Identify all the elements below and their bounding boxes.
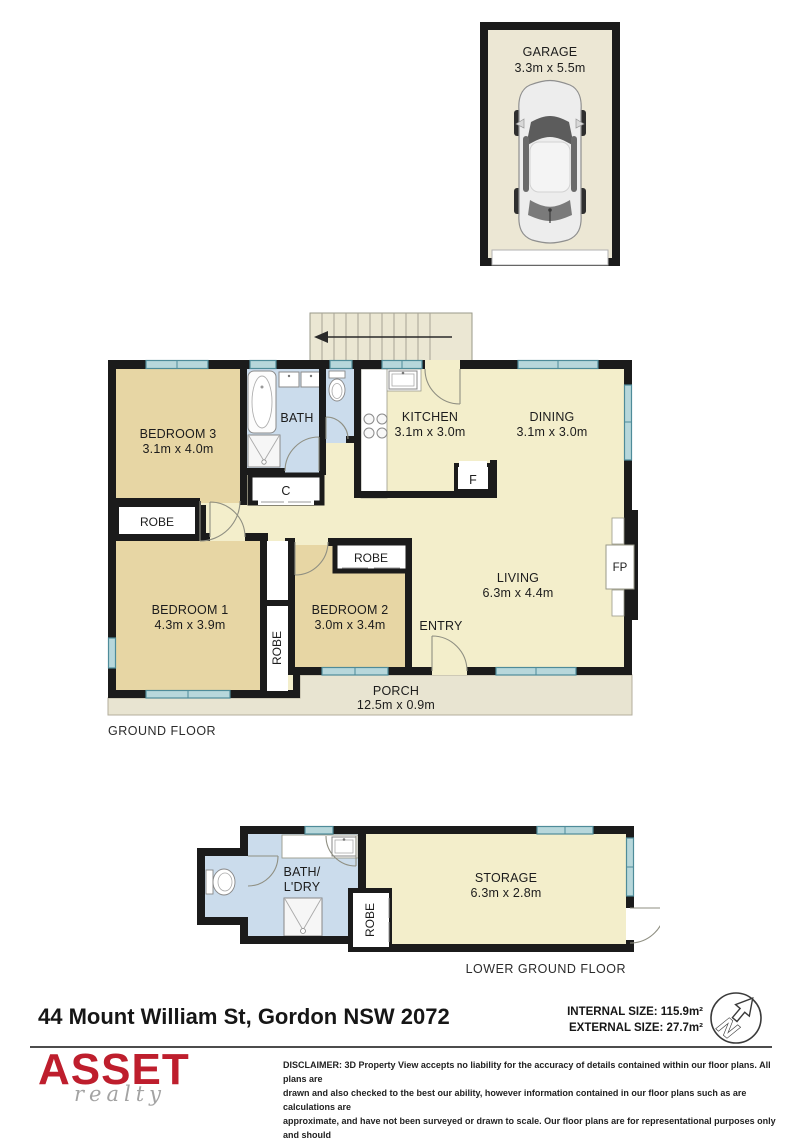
fridge-label: F [469, 473, 477, 487]
wall-cavity [267, 541, 288, 600]
laundry-bench [282, 835, 358, 858]
storage-dims: 6.3m x 2.8m [471, 886, 542, 900]
kitchen-sink-icon [389, 371, 417, 389]
bedroom2-dims: 3.0m x 3.4m [315, 618, 386, 632]
porch-label: PORCH [373, 684, 419, 698]
toilet-icon [206, 869, 235, 895]
shower-icon [248, 435, 280, 467]
floor-plan-page: GARAGE 3.3m x 5.5m [0, 0, 800, 1142]
bedroom3-label: BEDROOM 3 [140, 427, 217, 441]
entry-label: ENTRY [419, 619, 463, 633]
stairs-icon [310, 313, 472, 362]
porch-dims: 12.5m x 0.9m [357, 698, 435, 712]
bedroom1-label: BEDROOM 1 [152, 603, 229, 617]
living-label: LIVING [497, 571, 539, 585]
garage-plan: GARAGE 3.3m x 5.5m [480, 22, 620, 268]
bath-label: BATH [280, 411, 313, 425]
size-summary: INTERNAL SIZE: 115.9m² EXTERNAL SIZE: 27… [567, 1004, 703, 1036]
bath-ldry-label-2: L'DRY [284, 880, 321, 894]
bedroom1-dims: 4.3m x 3.9m [155, 618, 226, 632]
robe2-label: ROBE [270, 631, 284, 665]
car-icon [514, 81, 586, 244]
agency-logo-subtext: realty [74, 1082, 166, 1106]
bath-ldry-label-1: BATH/ [284, 865, 321, 879]
bedroom2-label: BEDROOM 2 [312, 603, 389, 617]
external-size: EXTERNAL SIZE: 27.7m² [567, 1020, 703, 1036]
disclaimer-line: drawn and also checked to the best our a… [283, 1086, 777, 1114]
closet-label: C [281, 484, 290, 498]
garage-dims: 3.3m x 5.5m [515, 61, 586, 75]
kitchen-dims: 3.1m x 3.0m [395, 425, 466, 439]
compass-icon: N [706, 988, 766, 1048]
bedroom3-dims: 3.1m x 4.0m [143, 442, 214, 456]
garage-door [492, 250, 608, 265]
disclaimer-line: DISCLAIMER: 3D Property View accepts no … [283, 1058, 777, 1086]
robe3-label: ROBE [354, 551, 388, 565]
living-dims: 6.3m x 4.4m [483, 586, 554, 600]
ground-floor-title: GROUND FLOOR [108, 724, 216, 738]
bathtub-icon [248, 371, 276, 433]
shower-icon [284, 898, 322, 936]
dining-dims: 3.1m x 3.0m [517, 425, 588, 439]
robe1-label: ROBE [140, 515, 174, 529]
internal-size: INTERNAL SIZE: 115.9m² [567, 1004, 703, 1020]
storage-label: STORAGE [475, 871, 537, 885]
fridge-opening [459, 461, 487, 469]
disclaimer-line: approximate, and have not been surveyed … [283, 1114, 777, 1142]
lower-ground-floor-title: LOWER GROUND FLOOR [466, 962, 626, 976]
property-address: 44 Mount William St, Gordon NSW 2072 [38, 1004, 450, 1030]
toilet-icon [329, 371, 345, 401]
disclaimer-text: DISCLAIMER: 3D Property View accepts no … [283, 1058, 777, 1142]
dining-label: DINING [530, 410, 575, 424]
lower-ground-floor-plan: BATH/ L'DRY STORAGE 6.3m x 2.8m ROBE LOW… [190, 812, 660, 982]
fireplace-label: FP [613, 562, 628, 574]
ground-floor-plan: BEDROOM 3 3.1m x 4.0m BATH KITCHEN 3.1m … [100, 305, 645, 745]
robe-label: ROBE [363, 903, 377, 937]
kitchen-label: KITCHEN [402, 410, 458, 424]
garage-title: GARAGE [523, 45, 578, 59]
